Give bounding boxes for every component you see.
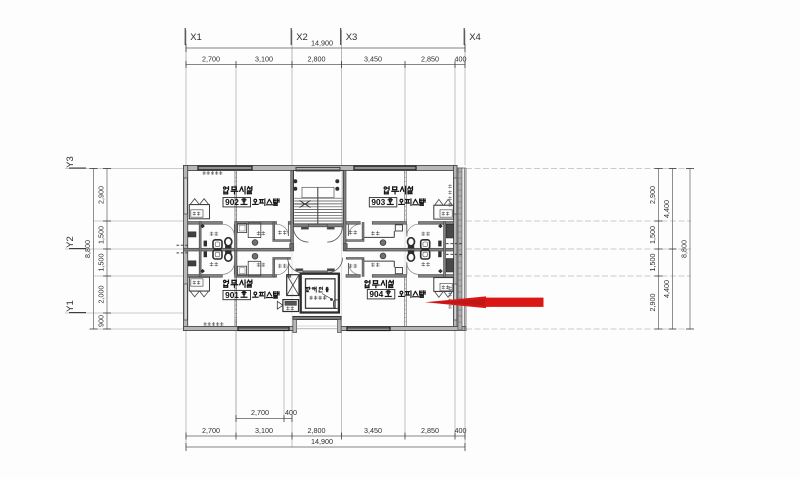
svg-text:2,900: 2,900 <box>648 294 657 312</box>
svg-text:Y2: Y2 <box>65 236 76 248</box>
svg-text:3,100: 3,100 <box>255 426 273 435</box>
svg-text:3,450: 3,450 <box>364 55 382 64</box>
svg-text:904: 904 <box>369 289 383 299</box>
svg-text:3,100: 3,100 <box>255 55 273 64</box>
svg-text:1,500: 1,500 <box>648 226 657 244</box>
svg-text:2,700: 2,700 <box>202 55 220 64</box>
svg-text:14,900: 14,900 <box>311 39 333 48</box>
svg-text:2,000: 2,000 <box>97 286 106 304</box>
svg-text:X4: X4 <box>469 32 481 43</box>
svg-text:901: 901 <box>225 290 239 300</box>
svg-text:1,500: 1,500 <box>97 226 106 244</box>
svg-text:X1: X1 <box>190 32 202 43</box>
svg-text:902: 902 <box>225 197 239 207</box>
svg-text:4,400: 4,400 <box>662 280 671 298</box>
svg-text:2,900: 2,900 <box>97 186 106 204</box>
svg-text:Y3: Y3 <box>65 156 76 168</box>
svg-text:2,900: 2,900 <box>648 186 657 204</box>
svg-text:900: 900 <box>97 315 106 327</box>
svg-text:2,700: 2,700 <box>251 408 269 417</box>
svg-text:903: 903 <box>371 197 385 207</box>
svg-text:2,800: 2,800 <box>308 426 326 435</box>
svg-text:4,400: 4,400 <box>662 200 671 218</box>
svg-text:X3: X3 <box>346 32 358 43</box>
svg-text:400: 400 <box>455 55 467 64</box>
svg-text:400: 400 <box>455 426 467 435</box>
svg-text:2,800: 2,800 <box>308 55 326 64</box>
svg-text:2,850: 2,850 <box>421 426 439 435</box>
svg-text:14,900: 14,900 <box>311 437 333 446</box>
svg-text:Y1: Y1 <box>65 300 76 312</box>
svg-text:2,700: 2,700 <box>202 426 220 435</box>
svg-text:3,450: 3,450 <box>364 426 382 435</box>
svg-text:400: 400 <box>285 408 297 417</box>
svg-text:8,800: 8,800 <box>680 240 689 258</box>
svg-text:1,500: 1,500 <box>97 254 106 272</box>
svg-text:X2: X2 <box>296 32 308 43</box>
svg-text:1,500: 1,500 <box>648 254 657 272</box>
svg-text:2,850: 2,850 <box>421 55 439 64</box>
